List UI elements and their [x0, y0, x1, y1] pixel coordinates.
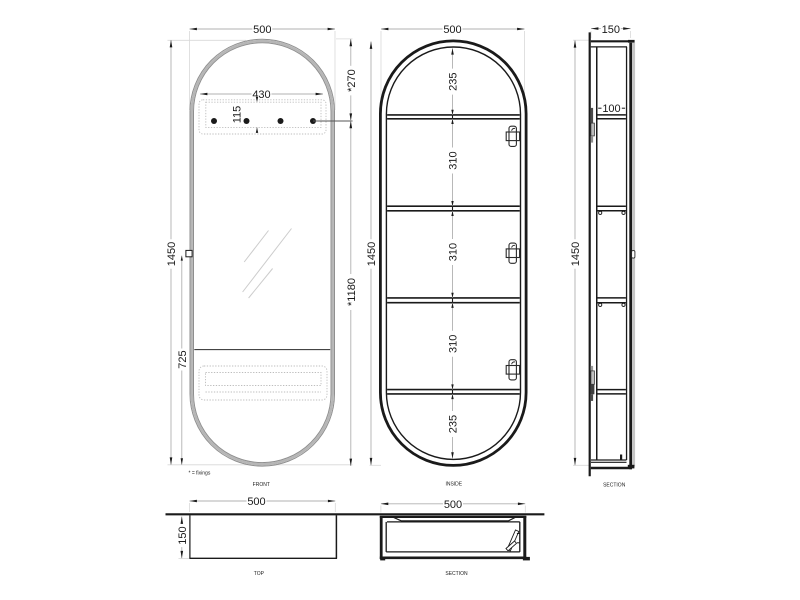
svg-text:115: 115 — [232, 106, 244, 124]
svg-text:500: 500 — [444, 499, 462, 511]
svg-text:235: 235 — [448, 72, 460, 90]
svg-text:1450: 1450 — [366, 242, 378, 266]
svg-text:500: 500 — [443, 24, 461, 36]
svg-text:1450: 1450 — [570, 242, 582, 266]
svg-text:310: 310 — [448, 243, 460, 261]
svg-text:INSIDE: INSIDE — [445, 482, 462, 488]
svg-text:SECTION: SECTION — [603, 482, 626, 488]
svg-text:SECTION: SECTION — [445, 571, 468, 577]
svg-text:150: 150 — [602, 24, 620, 36]
svg-text:500: 500 — [253, 24, 271, 36]
svg-text:TOP: TOP — [254, 571, 265, 577]
svg-text:310: 310 — [448, 151, 460, 169]
svg-text:500: 500 — [247, 496, 265, 508]
svg-text:* = fixings: * = fixings — [189, 471, 211, 477]
svg-text:100: 100 — [602, 103, 620, 115]
svg-text:725: 725 — [177, 350, 189, 368]
svg-text:235: 235 — [448, 415, 460, 433]
svg-text:150: 150 — [177, 526, 189, 544]
svg-text:*1180: *1180 — [346, 278, 358, 306]
svg-text:430: 430 — [252, 89, 270, 101]
svg-text:1450: 1450 — [166, 242, 178, 266]
svg-text:*270: *270 — [346, 69, 358, 92]
svg-text:FRONT: FRONT — [253, 482, 270, 488]
svg-text:310: 310 — [448, 335, 460, 353]
